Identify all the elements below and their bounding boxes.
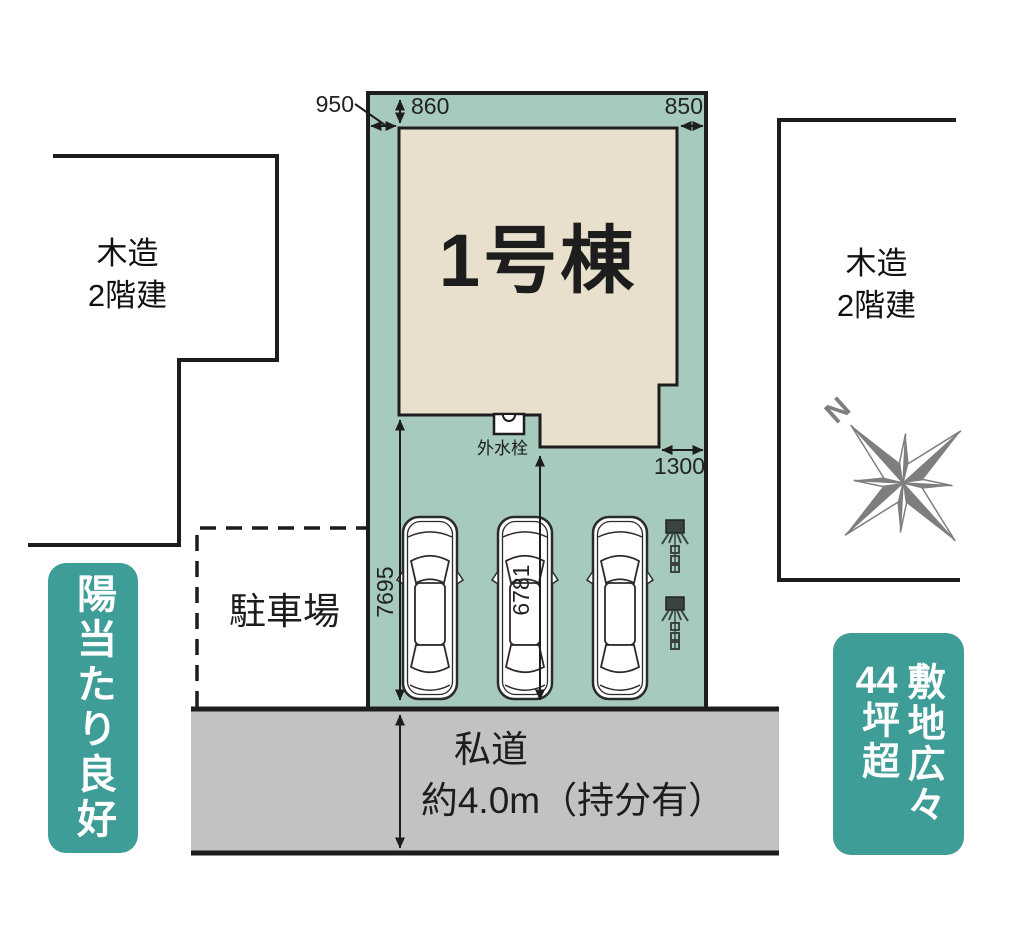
dim-label-950: 950 bbox=[300, 92, 354, 116]
badge-sunlight-text: 陽当たり良好 bbox=[69, 573, 117, 843]
road-label-line1: 私道 bbox=[441, 731, 541, 770]
water-tap-icon bbox=[494, 414, 524, 434]
badge-sunlight: 陽当たり良好 bbox=[48, 563, 138, 853]
dim-label-850: 850 bbox=[645, 94, 703, 118]
dim-label-860: 860 bbox=[411, 94, 449, 118]
badge-lot-size: 敷地広々44坪超 bbox=[833, 633, 964, 855]
dim-label-1300: 1300 bbox=[643, 454, 705, 478]
car-icon bbox=[587, 517, 653, 699]
compass-icon: N bbox=[769, 346, 1013, 593]
neighbor-right-label: 木造 2階建 bbox=[794, 243, 959, 327]
building-unit-label: 1号棟 bbox=[399, 222, 677, 300]
road-label-line2: 約4.0m（持分有） bbox=[408, 782, 738, 821]
water-tap-label: 外水栓 bbox=[460, 440, 545, 458]
badge-lot-size-text: 敷地広々44坪超 bbox=[853, 662, 944, 826]
badge-lot-size-number: 44 bbox=[856, 662, 898, 700]
dim-label-7695: 7695 bbox=[373, 537, 397, 647]
neighbor-left-outline bbox=[28, 156, 277, 545]
car-icon bbox=[397, 517, 463, 699]
neighbor-left-label: 木造 2階建 bbox=[45, 233, 210, 317]
badge-lot-size-col1: 敷地広々 bbox=[901, 662, 943, 826]
dim-label-6781: 6781 bbox=[509, 535, 533, 645]
parking-label: 駐車場 bbox=[212, 593, 357, 632]
compass-north-label: N bbox=[819, 391, 857, 430]
site-plan: N 950 860 850 1300 7695 6781 1号棟 外水栓 木造 … bbox=[0, 0, 1024, 947]
badge-lot-size-rest: 坪超 bbox=[856, 700, 898, 782]
